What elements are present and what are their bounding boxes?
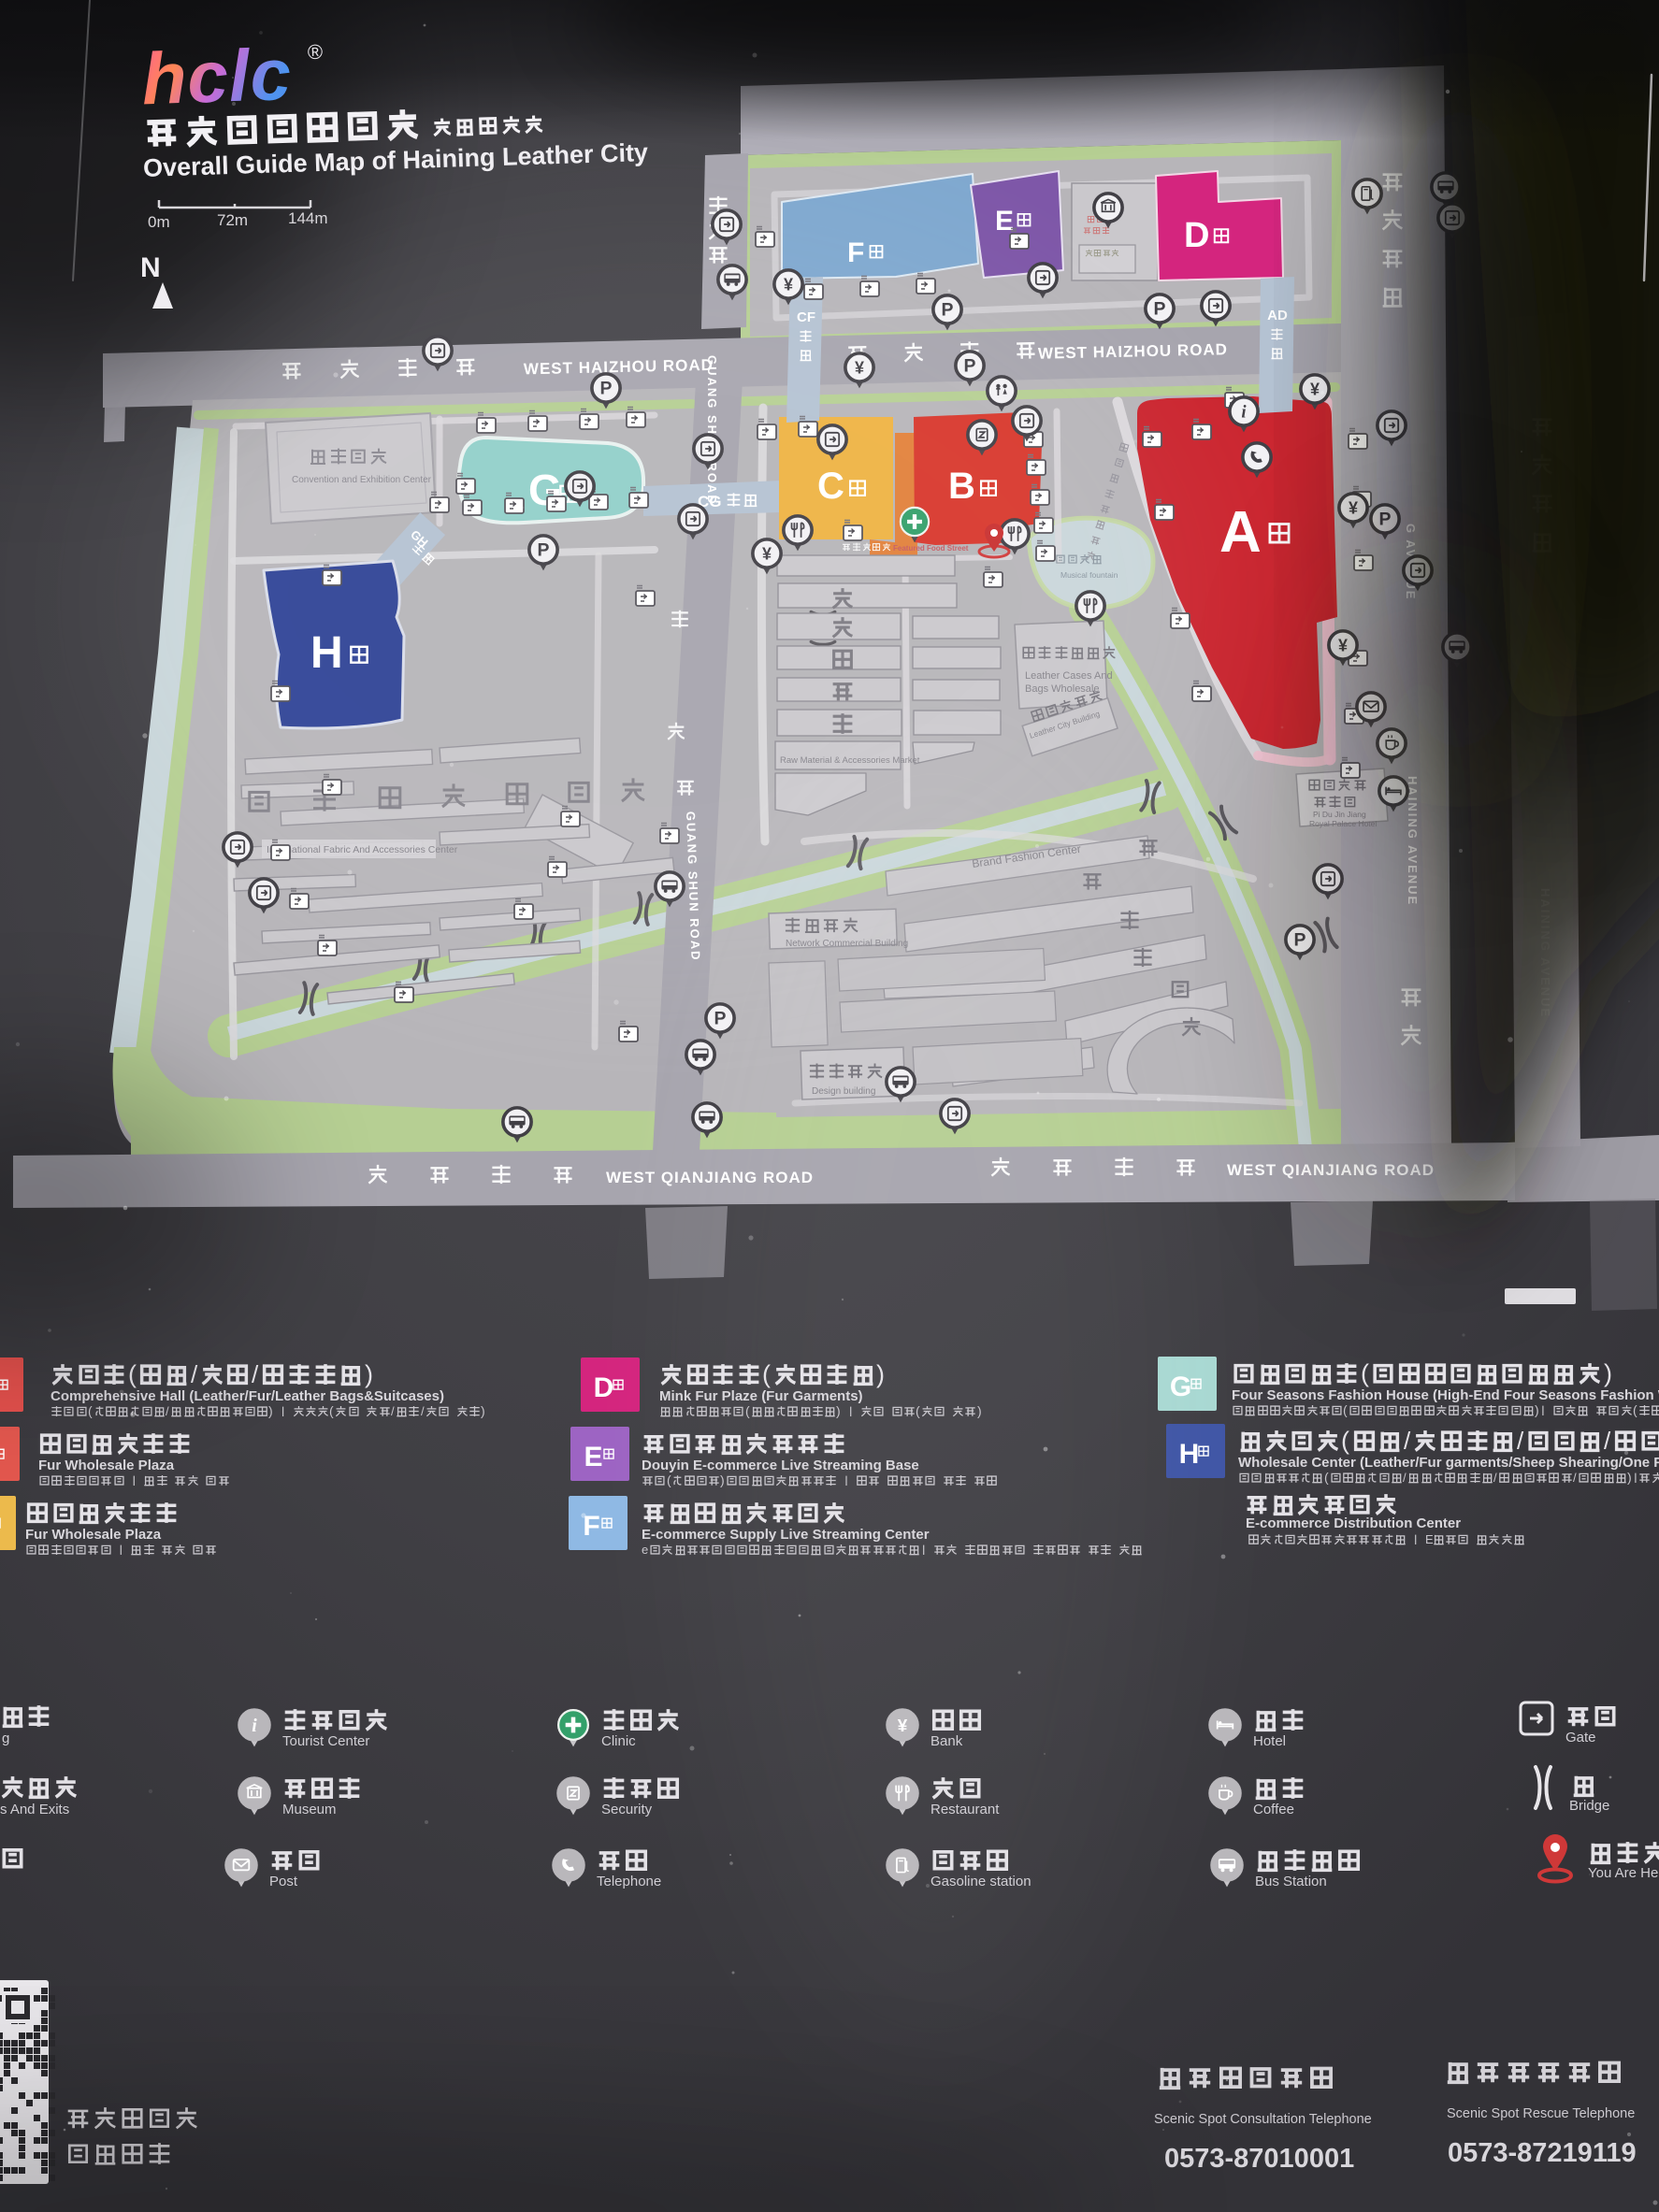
svg-text:H: H	[1179, 1439, 1200, 1470]
svg-text:(: (	[1361, 1359, 1369, 1387]
svg-text:/: /	[166, 1404, 169, 1418]
svg-text:): )	[1535, 1402, 1539, 1417]
svg-text:¥: ¥	[1349, 498, 1358, 517]
svg-text:E: E	[584, 1442, 602, 1472]
svg-text:/: /	[1493, 1471, 1497, 1485]
svg-text:i: i	[252, 1716, 257, 1736]
svg-text:e: e	[642, 1543, 648, 1557]
svg-text:s And Exits: s And Exits	[0, 1802, 69, 1817]
svg-text:(: (	[667, 1472, 671, 1487]
svg-text:P: P	[714, 1008, 727, 1028]
svg-text:Bus Station: Bus Station	[1255, 1874, 1327, 1889]
svg-text:Fur Wholesale Plaza: Fur Wholesale Plaza	[25, 1527, 162, 1543]
svg-text:hclc: hclc	[140, 33, 293, 121]
svg-text:Coffee: Coffee	[1253, 1802, 1294, 1817]
svg-text:Post: Post	[269, 1874, 298, 1889]
svg-text:E: E	[995, 206, 1014, 237]
svg-text:0m: 0m	[148, 213, 170, 231]
svg-text:Four Seasons Fashion House (Hi: Four Seasons Fashion House (High-End Fou…	[1232, 1387, 1659, 1403]
svg-text:D: D	[1184, 216, 1209, 255]
svg-text:Bridge: Bridge	[1569, 1798, 1609, 1814]
svg-text:/: /	[191, 1360, 198, 1388]
svg-text:Security: Security	[601, 1802, 653, 1817]
svg-text:Scenic Spot Consultation Telep: Scenic Spot Consultation Telephone	[1154, 2112, 1372, 2127]
svg-text:(: (	[1324, 1470, 1329, 1485]
svg-text:0573-87010001: 0573-87010001	[1164, 2144, 1354, 2174]
svg-text:/: /	[391, 1404, 395, 1418]
svg-text:¥: ¥	[1310, 380, 1320, 398]
svg-text:/: /	[421, 1404, 425, 1418]
svg-text:(: (	[329, 1403, 334, 1418]
svg-text:(: (	[1341, 1427, 1349, 1455]
svg-text:): )	[268, 1403, 273, 1418]
svg-text:Hotel: Hotel	[1253, 1733, 1286, 1749]
svg-text:g: g	[2, 1731, 9, 1746]
svg-text:i: i	[1241, 402, 1247, 422]
svg-text:AD: AD	[1267, 308, 1288, 323]
svg-text:A: A	[1219, 500, 1262, 565]
svg-text:Museum: Museum	[282, 1802, 337, 1817]
svg-text:/: /	[1573, 1471, 1577, 1485]
svg-text:E: E	[1425, 1532, 1434, 1546]
svg-text:Wholesale Center (Leather/Fur: Wholesale Center (Leather/Fur garments/S…	[1238, 1455, 1659, 1471]
svg-text:/: /	[252, 1360, 259, 1388]
svg-text:): )	[1604, 1359, 1612, 1387]
svg-text:(: (	[1633, 1402, 1637, 1417]
svg-text:Clinic: Clinic	[601, 1733, 636, 1749]
svg-text:/: /	[1604, 1427, 1611, 1455]
svg-text:E-commerce Distribution Center: E-commerce Distribution Center	[1246, 1515, 1461, 1531]
svg-text:®: ®	[307, 40, 323, 65]
svg-text:Comprehensive Hall (Leather/Fu: Comprehensive Hall (Leather/Fur/Leather …	[50, 1388, 444, 1404]
svg-text:N: N	[140, 252, 161, 283]
svg-text:Gate: Gate	[1565, 1730, 1596, 1745]
svg-text:Tourist Center: Tourist Center	[282, 1733, 369, 1749]
svg-text:144m: 144m	[288, 209, 328, 227]
svg-text:0573-87219119: 0573-87219119	[1448, 2138, 1637, 2168]
svg-text:/: /	[1404, 1427, 1411, 1455]
svg-text:72m: 72m	[217, 211, 248, 229]
svg-text:/: /	[1403, 1471, 1407, 1485]
svg-text:P: P	[1294, 929, 1306, 950]
svg-text:): )	[1627, 1470, 1632, 1485]
svg-text:Fur Wholesale Plaza: Fur Wholesale Plaza	[38, 1458, 175, 1473]
svg-text:(: (	[1343, 1402, 1348, 1417]
svg-text:/: /	[1517, 1427, 1524, 1455]
svg-text:You Are He: You Are He	[1588, 1865, 1658, 1881]
svg-text:P: P	[1154, 298, 1166, 319]
svg-text:Telephone: Telephone	[597, 1874, 661, 1889]
svg-text:(: (	[128, 1360, 137, 1388]
svg-text:(: (	[88, 1403, 93, 1418]
svg-text:Scenic Spot Rescue Telephone: Scenic Spot Rescue Telephone	[1447, 2106, 1635, 2121]
svg-text:): )	[481, 1403, 485, 1418]
svg-text:D: D	[594, 1372, 614, 1403]
svg-text:): )	[365, 1360, 373, 1388]
